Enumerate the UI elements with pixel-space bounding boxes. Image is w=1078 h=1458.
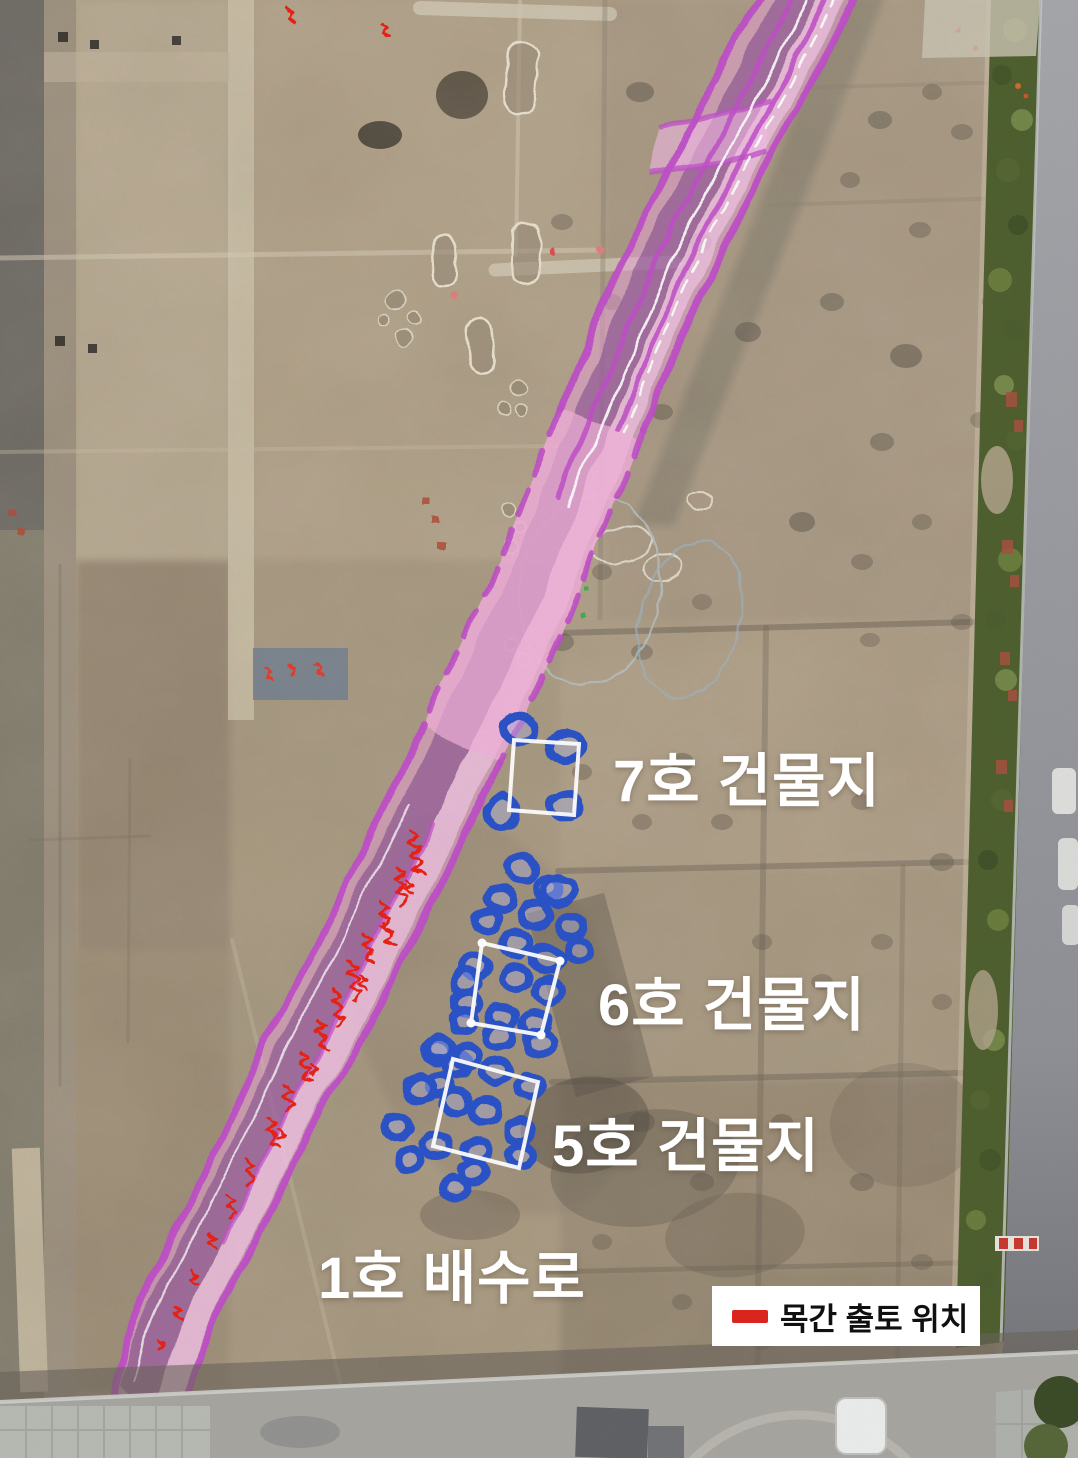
site-aerial-photo: 7호 건물지 6호 건물지 5호 건물지 1호 배수로 목간 출토 위치 (0, 0, 1078, 1458)
building-7-label: 7호 건물지 (613, 753, 881, 811)
drain-1-label: 1호 배수로 (318, 1250, 586, 1308)
legend: 목간 출토 위치 (712, 1286, 980, 1346)
photo-grain (0, 0, 1078, 1458)
building-5-label: 5호 건물지 (552, 1118, 820, 1176)
building-6-label: 6호 건물지 (598, 977, 866, 1035)
red-dash-icon (732, 1310, 768, 1323)
site-map-graphics (0, 0, 1078, 1458)
legend-label: 목간 출토 위치 (780, 1294, 968, 1339)
